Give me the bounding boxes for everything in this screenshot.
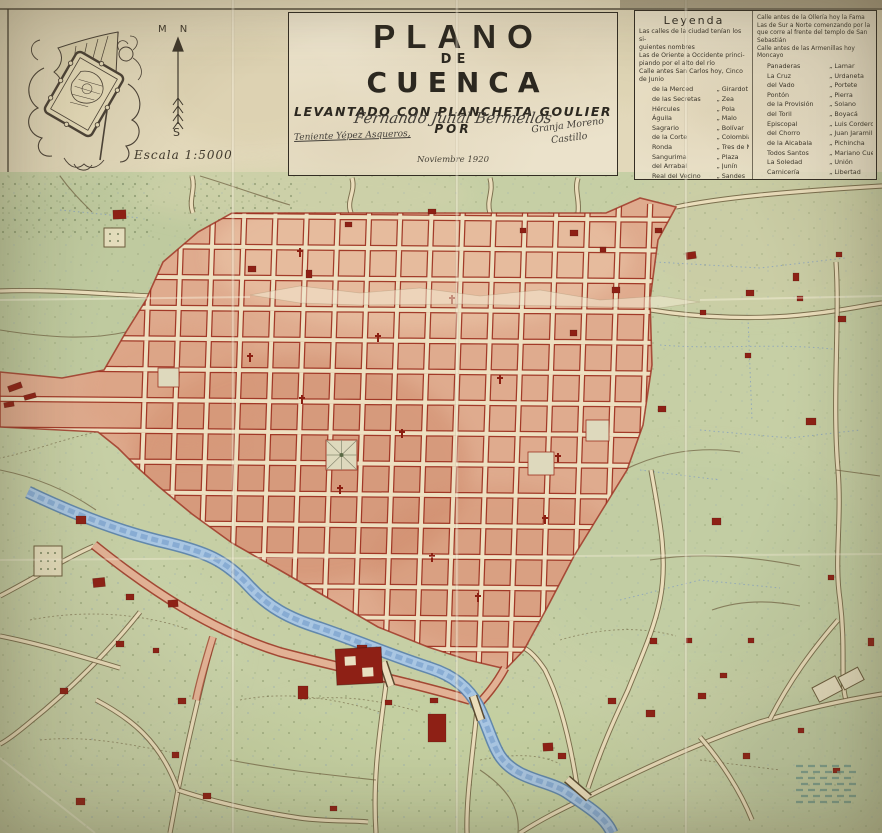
building xyxy=(428,714,446,742)
building xyxy=(793,273,799,281)
building xyxy=(428,209,436,214)
street-name-pair: de la Corte„Colombia xyxy=(639,133,749,143)
compass-north-label: M N xyxy=(158,24,192,35)
map-title-line1: PLANO xyxy=(289,20,617,53)
building xyxy=(798,728,804,733)
plaza xyxy=(158,368,179,387)
building xyxy=(298,686,308,699)
large-building-complex xyxy=(335,647,383,685)
building xyxy=(543,743,553,752)
street-name-pair: Carnicería„Libertad xyxy=(757,168,873,178)
building xyxy=(612,287,620,293)
street-name-pair: La Cruz„Urdaneta xyxy=(757,72,873,82)
street-name-pair: de la Merced„Girardot xyxy=(639,85,749,95)
building xyxy=(76,798,85,805)
building xyxy=(172,752,179,758)
legend-intro: Las calles de la ciudad tenían los si-gu… xyxy=(639,28,749,52)
building xyxy=(558,753,566,759)
legend-right-column: Calle antes de la Ollería hoy la FamaLas… xyxy=(753,11,876,179)
building xyxy=(76,516,86,524)
street-name-pair: Real del Vecino„Sandes xyxy=(639,172,749,182)
building xyxy=(868,638,874,646)
street-name-pair: de las Secretas„Zea xyxy=(639,95,749,105)
building xyxy=(748,638,754,643)
building xyxy=(646,710,655,717)
building xyxy=(658,406,666,412)
building xyxy=(712,518,721,525)
plaza-central xyxy=(326,440,357,470)
building xyxy=(600,247,606,252)
map-sheet: PLANO DE CUENCA LEVANTADO CON PLANCHETA … xyxy=(0,0,882,833)
building xyxy=(838,316,846,322)
building xyxy=(686,638,692,643)
street-name-pair: de la Provisión„Solano xyxy=(757,100,873,110)
street-name-pair: Pontón„Pierra xyxy=(757,91,873,101)
building xyxy=(430,698,438,703)
scale-label: Escala 1:5000 xyxy=(134,148,233,162)
building xyxy=(746,290,754,296)
street-name-pair: del Chorro„Juan Jaramillo xyxy=(757,129,873,139)
building xyxy=(686,251,697,259)
building xyxy=(520,228,526,233)
building xyxy=(93,577,106,587)
building xyxy=(836,252,842,257)
street-name-pair: Ronda„Tres de Noviembre xyxy=(639,143,749,153)
building xyxy=(608,698,616,704)
building xyxy=(570,330,577,336)
legend-panel: Leyenda Las calles de la ciudad tenían l… xyxy=(634,10,877,180)
street-name-pair: Episcopal„Luis Cordero xyxy=(757,120,873,130)
street-name-pair: Sagrario„Bolívar xyxy=(639,124,749,134)
building xyxy=(113,210,126,219)
plaza xyxy=(528,452,554,475)
building xyxy=(345,222,352,227)
building xyxy=(828,575,834,580)
street-name-pair: Panaderas„Lamar xyxy=(757,62,873,72)
building xyxy=(650,638,657,644)
street-name-pair: de la Alcabala„Pichincha xyxy=(757,139,873,149)
building xyxy=(248,266,256,272)
building xyxy=(60,688,68,694)
legend-right-pairs: Panaderas„Lamar La Cruz„Urdaneta del Vad… xyxy=(757,62,873,177)
compass-south-label: S xyxy=(173,126,180,139)
legend-left-pairs: de la Merced„Girardot de las Secretas„Ze… xyxy=(639,85,749,181)
walled-garden xyxy=(104,228,125,247)
plaza xyxy=(586,420,609,441)
walled-enclosure xyxy=(34,546,62,576)
legend-left-heading: Las de Oriente a Occidente princi-piando… xyxy=(639,52,749,84)
building xyxy=(570,230,578,236)
legend-title: Leyenda xyxy=(639,14,749,27)
street-name-pair: Sangurima„Plaza xyxy=(639,153,749,163)
tree-grove xyxy=(0,176,155,238)
building xyxy=(698,693,706,699)
street-name-pair: Todos Santos„Mariano Cueva xyxy=(757,149,873,159)
street-name-pair: del Vado„Portete xyxy=(757,81,873,91)
building xyxy=(178,698,186,704)
building xyxy=(720,673,727,678)
building xyxy=(116,641,124,647)
street-name-pair: Hércules„Pola xyxy=(639,105,749,115)
street-name-pair: del Toril„Boyacá xyxy=(757,110,873,120)
building xyxy=(743,753,750,759)
building xyxy=(306,270,312,278)
building xyxy=(385,700,392,705)
building xyxy=(330,806,337,811)
street-name-pair: La Soledad„Unión xyxy=(757,158,873,168)
legend-right-heading: Calle antes de la Ollería hoy la FamaLas… xyxy=(757,15,873,61)
title-cartouche: PLANO DE CUENCA LEVANTADO CON PLANCHETA … xyxy=(288,12,618,176)
building xyxy=(126,594,134,600)
map-date: Noviembre 1920 xyxy=(289,155,617,165)
building xyxy=(700,310,706,315)
building xyxy=(655,228,662,233)
legend-left-column: Leyenda Las calles de la ciudad tenían l… xyxy=(635,11,753,179)
building xyxy=(203,793,211,799)
building xyxy=(806,418,816,425)
street-name-pair: Águila„Malo xyxy=(639,114,749,124)
street-name-pair: del Arrabal„Junín xyxy=(639,162,749,172)
building xyxy=(745,353,751,358)
building xyxy=(153,648,159,653)
map-title-line3: CUENCA xyxy=(289,68,617,97)
building xyxy=(168,600,178,608)
